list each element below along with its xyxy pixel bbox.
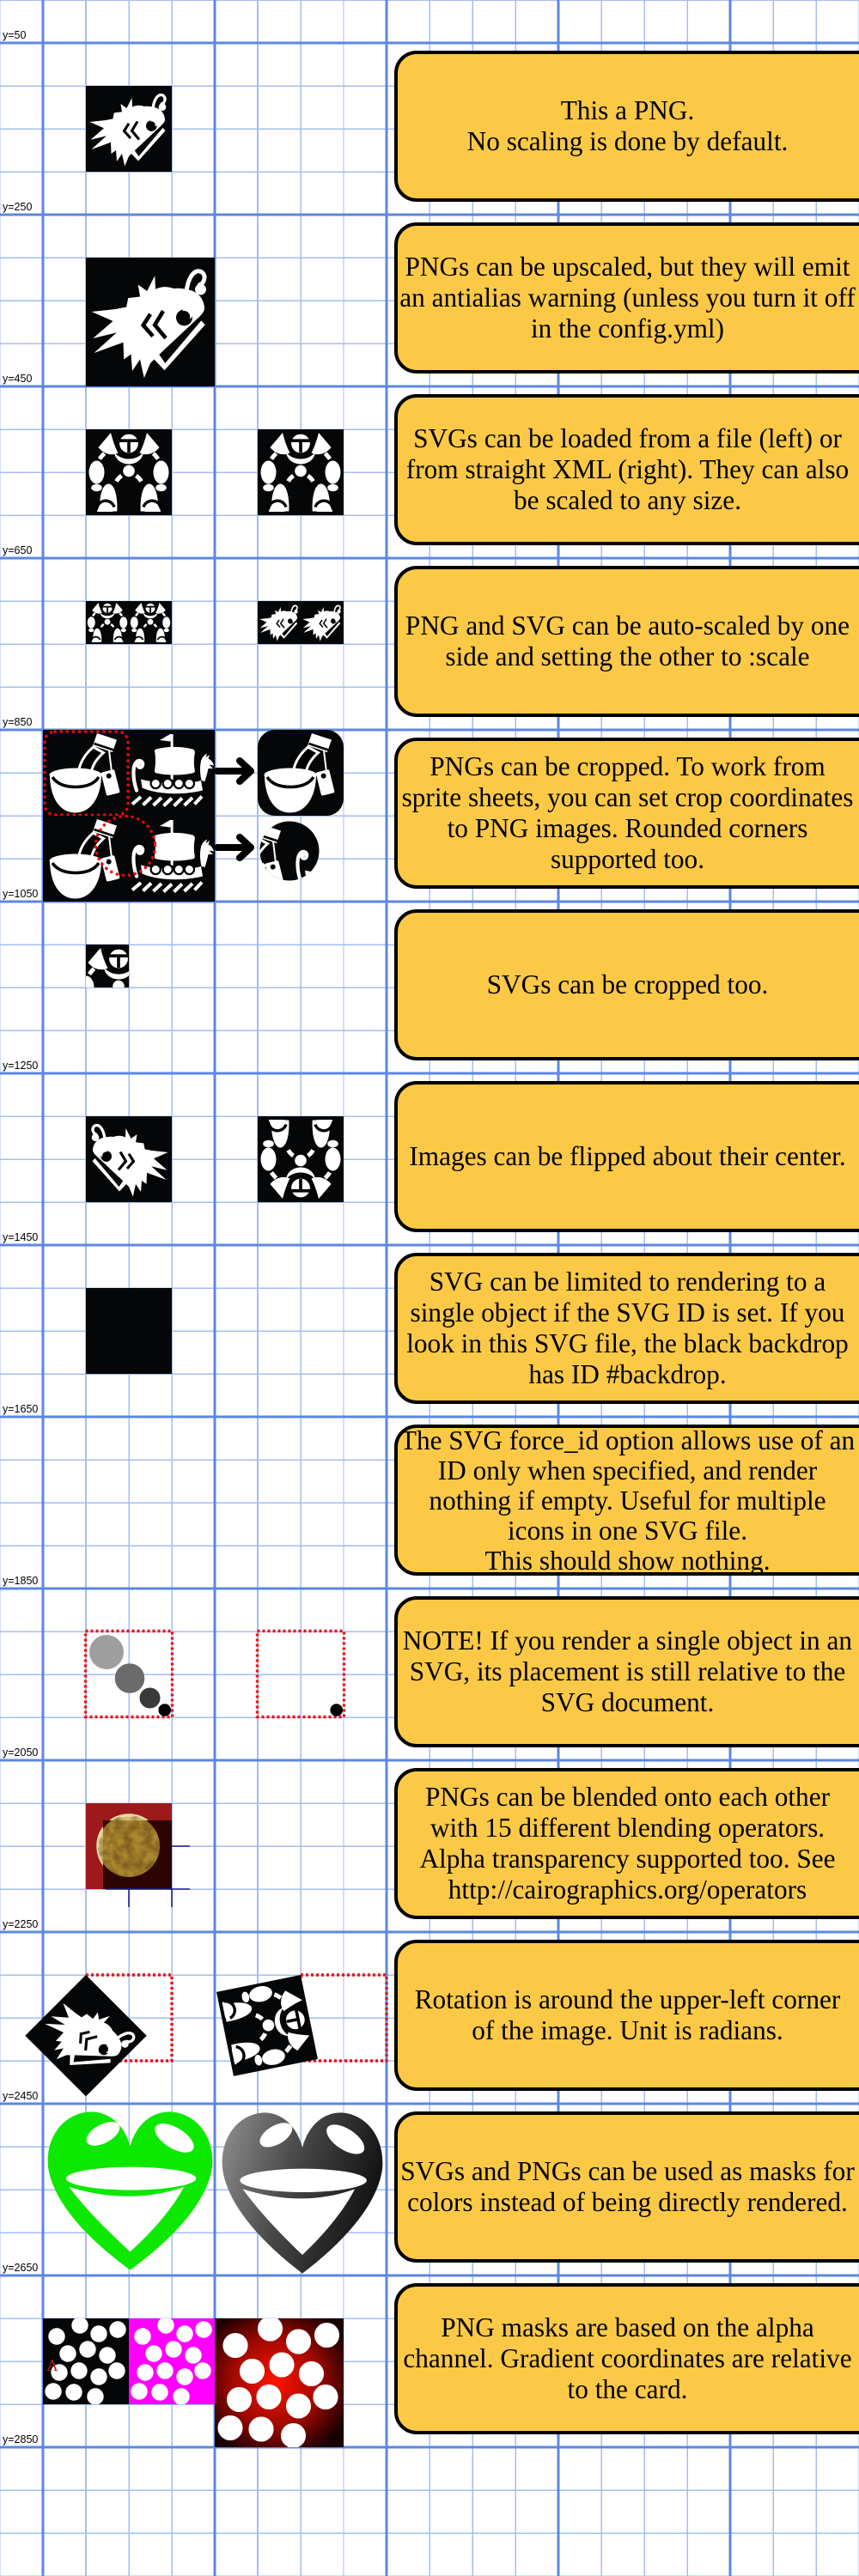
svg-text:A: A <box>46 2357 58 2375</box>
